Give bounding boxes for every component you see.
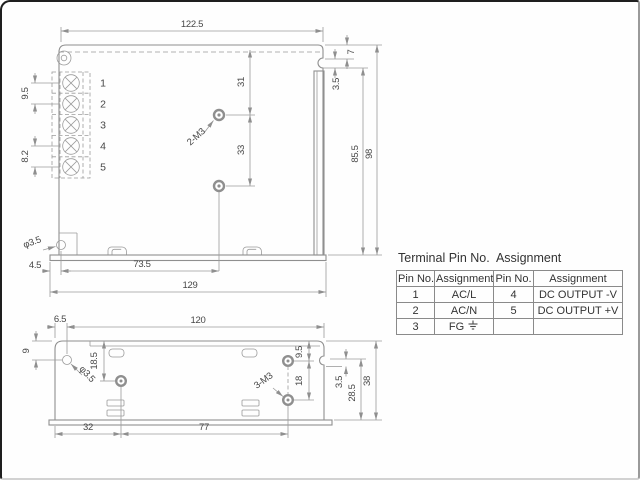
- earth-ground-icon: [467, 320, 479, 331]
- terminal-block: [52, 72, 90, 178]
- terminal-screw-3: [63, 117, 80, 134]
- vent-right-2: [242, 410, 259, 416]
- side-m3-hole-left: [116, 376, 126, 386]
- header-assignment-1: Assignment: [435, 271, 494, 287]
- cell-pin-empty: [494, 319, 534, 335]
- mechanical-drawing: 1 2 3 4 5 2-M3 φ3.5 122.5: [2, 2, 640, 480]
- mounting-flange: [50, 255, 326, 261]
- cell-pin-1: 1: [397, 287, 435, 303]
- dim-hole-gap: 33: [236, 145, 247, 155]
- terminal-screw-2: [63, 96, 80, 113]
- slot-left: [109, 349, 124, 357]
- dim-hole-top: 31: [236, 77, 247, 87]
- label-2-m3: 2-M3: [185, 126, 208, 148]
- chassis-hole: [57, 241, 66, 250]
- dim-pin-pitch: 9.5: [20, 87, 31, 99]
- pin-label-5: 5: [100, 162, 106, 174]
- dim-rail-height: 85.5: [350, 145, 361, 162]
- side-view: φ3.5 3-M3 6.5 120: [21, 314, 382, 438]
- label-3-m3: 3-M3: [252, 371, 275, 392]
- table-title: Terminal Pin No. Assignment: [398, 251, 634, 265]
- cell-pin-2: 2: [397, 303, 435, 319]
- dim-right-hole-gap: 18: [294, 376, 305, 386]
- dim-side-notch: 3.5: [334, 376, 345, 388]
- dim-screw-span: 77: [199, 422, 209, 433]
- dim-side-hole-offset: 6.5: [54, 314, 66, 325]
- header-pin-no-2: Pin No.: [494, 271, 534, 287]
- slot-right: [242, 349, 257, 357]
- vent-right-1: [242, 400, 259, 406]
- dim-side-width: 120: [191, 315, 206, 326]
- cell-assign-4: DC OUTPUT -V: [534, 287, 623, 303]
- header-pin-no-1: Pin No.: [397, 271, 435, 287]
- top-view: 1 2 3 4 5 2-M3 φ3.5 122.5: [20, 19, 382, 297]
- pin-label-3: 3: [100, 120, 106, 132]
- vent-left-2: [107, 410, 124, 416]
- dim-notch: 3.5: [331, 78, 342, 90]
- pin-label-4: 4: [100, 141, 106, 153]
- pin-label-2: 2: [100, 99, 106, 111]
- louver-left: [108, 247, 127, 255]
- vent-left-1: [107, 400, 124, 406]
- dim-screw-left: 32: [83, 422, 93, 433]
- m3-hole-upper: [214, 110, 224, 120]
- dim-hole-span: 73.5: [133, 259, 150, 270]
- cell-pin-3: 3: [397, 319, 435, 335]
- cell-assign-5: DC OUTPUT +V: [534, 303, 623, 319]
- cell-pin-4: 4: [494, 287, 534, 303]
- dim-height: 98: [364, 149, 375, 159]
- dim-right-hole-top: 9.5: [294, 346, 305, 358]
- terminal-screw-5: [63, 159, 80, 176]
- m3-hole-lower: [214, 181, 224, 191]
- dim-screw-top: 18.5: [89, 352, 100, 369]
- terminal-screw-1: [63, 75, 80, 92]
- dim-hole-offset: 4.5: [29, 260, 41, 271]
- label-phi35-top: φ3.5: [22, 234, 43, 251]
- pin-label-1: 1: [100, 78, 106, 90]
- header-assignment-2: Assignment: [534, 271, 623, 287]
- side-m3-hole-lower: [283, 395, 293, 405]
- datasheet-page: 1 2 3 4 5 2-M3 φ3.5 122.5: [0, 0, 640, 480]
- terminal-assignment-table: Pin No. Assignment Pin No. Assignment 1 …: [396, 270, 623, 335]
- side-m3-hole-upper: [283, 356, 293, 366]
- cell-assign-3: FG: [435, 319, 494, 335]
- cell-assign-1: AC/L: [435, 287, 494, 303]
- dim-notch-to-bottom: 28.5: [347, 384, 358, 401]
- table-row: 1 AC/L 4 DC OUTPUT -V: [397, 287, 623, 303]
- cell-pin-5: 5: [494, 303, 534, 319]
- case-outline: [59, 45, 323, 255]
- side-chassis-hole: [63, 356, 72, 365]
- cell-assign-2: AC/N: [435, 303, 494, 319]
- dim-side-hole-top: 9: [21, 348, 32, 353]
- table-header-row: Pin No. Assignment Pin No. Assignment: [397, 271, 623, 287]
- terminal-assignment-section: Terminal Pin No. Assignment Pin No. Assi…: [396, 251, 634, 335]
- dim-total-width: 129: [183, 280, 198, 291]
- table-row: 2 AC/N 5 DC OUTPUT +V: [397, 303, 623, 319]
- dim-width: 122.5: [181, 19, 203, 30]
- dim-side-height: 38: [362, 376, 373, 386]
- louver-right: [243, 247, 262, 255]
- table-row: 3 FG: [397, 319, 623, 335]
- side-view-dimensions: 6.5 120 9 18.5 9.5 18: [21, 314, 382, 438]
- cell-assign-empty: [534, 319, 623, 335]
- dim-notch-top: 7: [346, 49, 357, 54]
- dim-pin-pitch-last: 8.2: [20, 150, 31, 162]
- terminal-screw-4: [63, 138, 80, 155]
